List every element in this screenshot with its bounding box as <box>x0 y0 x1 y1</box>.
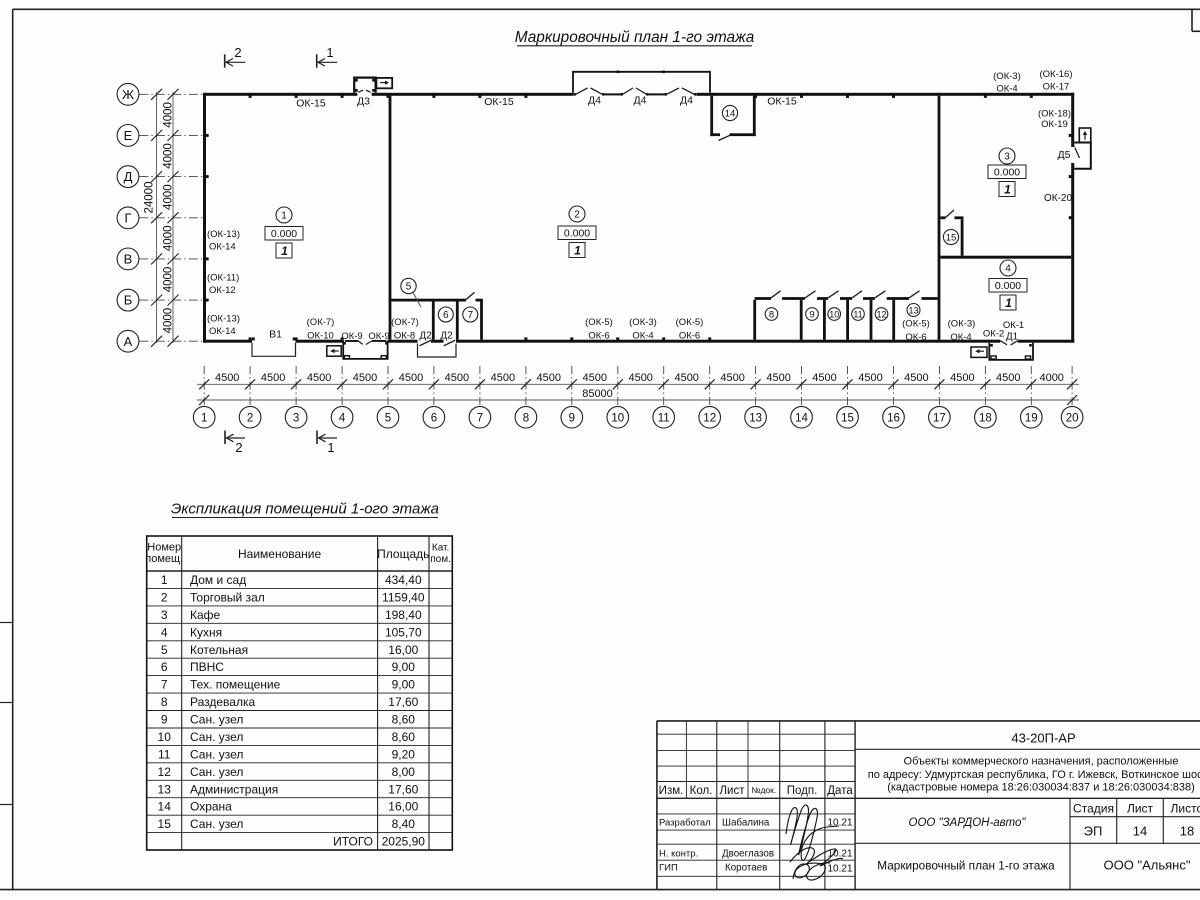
svg-text:14: 14 <box>1133 824 1147 839</box>
svg-text:13: 13 <box>749 412 762 424</box>
svg-text:(ОК-16): (ОК-16) <box>1040 69 1073 80</box>
svg-text:5: 5 <box>385 412 391 424</box>
svg-text:ОК-10: ОК-10 <box>307 331 334 342</box>
svg-text:7: 7 <box>477 412 483 424</box>
svg-text:Охрана: Охрана <box>190 800 232 814</box>
svg-text:4000: 4000 <box>163 267 175 293</box>
svg-text:9,00: 9,00 <box>392 678 416 692</box>
svg-text:Сан. узел: Сан. узел <box>190 747 243 761</box>
svg-text:Сан. узел: Сан. узел <box>190 730 243 744</box>
svg-text:4500: 4500 <box>720 372 744 384</box>
svg-text:4: 4 <box>1005 264 1011 275</box>
svg-text:Лист: Лист <box>1127 802 1154 816</box>
svg-text:Раздевалка: Раздевалка <box>190 695 255 709</box>
svg-text:Котельная: Котельная <box>190 643 248 657</box>
svg-text:17,60: 17,60 <box>388 695 418 709</box>
svg-text:1: 1 <box>1005 296 1012 310</box>
svg-text:Б: Б <box>124 293 133 308</box>
svg-text:1: 1 <box>1004 183 1011 197</box>
svg-text:2: 2 <box>247 412 253 424</box>
svg-text:24000: 24000 <box>144 182 156 214</box>
svg-text:2: 2 <box>161 590 168 604</box>
svg-text:Сан. узел: Сан. узел <box>190 713 243 727</box>
svg-text:Наименование: Наименование <box>238 547 322 561</box>
svg-text:Номер: Номер <box>147 542 181 554</box>
svg-text:4000: 4000 <box>163 184 175 210</box>
svg-text:ООО "ЗАРДОН-авто": ООО "ЗАРДОН-авто" <box>909 817 1027 829</box>
svg-text:18: 18 <box>1180 824 1194 839</box>
svg-text:43-20П-АР: 43-20П-АР <box>1011 731 1075 746</box>
svg-text:ОК-4: ОК-4 <box>950 332 971 343</box>
svg-text:4000: 4000 <box>163 143 175 169</box>
svg-text:3: 3 <box>293 412 299 424</box>
svg-text:ОК-9: ОК-9 <box>368 331 389 342</box>
svg-text:Двоеглазов: Двоеглазов <box>722 849 774 860</box>
svg-text:8,40: 8,40 <box>392 817 416 831</box>
svg-text:0.000: 0.000 <box>271 228 297 240</box>
svg-text:15: 15 <box>841 412 854 424</box>
svg-text:6: 6 <box>161 660 168 674</box>
svg-text:3: 3 <box>1004 152 1010 163</box>
svg-text:15: 15 <box>946 233 957 244</box>
svg-text:(ОК-5): (ОК-5) <box>902 319 930 330</box>
svg-text:4500: 4500 <box>261 372 285 384</box>
svg-text:17: 17 <box>933 412 946 424</box>
svg-text:4500: 4500 <box>628 372 652 384</box>
svg-text:В1: В1 <box>269 329 282 341</box>
svg-text:7: 7 <box>161 678 168 692</box>
svg-text:ОК-4: ОК-4 <box>632 331 653 342</box>
svg-text:4500: 4500 <box>950 372 974 384</box>
svg-text:14: 14 <box>158 800 172 814</box>
svg-text:4500: 4500 <box>812 372 836 384</box>
svg-text:Лист: Лист <box>720 785 746 797</box>
svg-text:11: 11 <box>158 747 171 761</box>
svg-text:Объекты коммерческого назначен: Объекты коммерческого назначения, распол… <box>904 756 1179 768</box>
svg-text:4000: 4000 <box>163 226 175 252</box>
svg-text:ОК-6: ОК-6 <box>588 331 609 342</box>
svg-text:ОК-2: ОК-2 <box>983 328 1004 339</box>
svg-text:Д2: Д2 <box>419 331 432 342</box>
svg-text:ПВНС: ПВНС <box>190 660 224 674</box>
svg-text:ЭП: ЭП <box>1084 824 1103 839</box>
svg-text:9,20: 9,20 <box>392 747 416 761</box>
svg-text:3: 3 <box>161 608 168 622</box>
svg-text:14: 14 <box>795 412 808 424</box>
svg-text:Площадь: Площадь <box>377 547 429 561</box>
svg-text:(ОК-5): (ОК-5) <box>585 317 613 328</box>
svg-text:(ОК-3): (ОК-3) <box>948 319 976 330</box>
svg-text:1: 1 <box>161 573 168 587</box>
svg-text:6: 6 <box>431 412 437 424</box>
svg-text:4500: 4500 <box>996 372 1020 384</box>
svg-text:13: 13 <box>908 305 918 315</box>
svg-text:Торговый зал: Торговый зал <box>190 590 265 604</box>
svg-text:(ОК-11): (ОК-11) <box>207 273 239 284</box>
svg-text:9: 9 <box>809 309 814 320</box>
svg-text:(ОК-3): (ОК-3) <box>993 71 1021 82</box>
svg-text:1: 1 <box>326 45 333 60</box>
svg-text:4500: 4500 <box>445 372 469 384</box>
svg-text:ОК-6: ОК-6 <box>905 332 926 343</box>
svg-text:16: 16 <box>887 412 900 424</box>
svg-text:Листов: Листов <box>1171 802 1200 816</box>
svg-text:ОК-9: ОК-9 <box>341 331 362 342</box>
svg-text:Д3: Д3 <box>357 96 370 108</box>
svg-text:ИТОГО: ИТОГО <box>333 835 373 849</box>
svg-text:4500: 4500 <box>766 372 790 384</box>
svg-text:ОК-12: ОК-12 <box>209 285 236 296</box>
svg-text:Экспликация помещений 1-ого эт: Экспликация помещений 1-ого этажа <box>171 501 439 518</box>
svg-text:Д5: Д5 <box>1058 149 1071 161</box>
svg-text:9: 9 <box>161 713 168 727</box>
svg-text:2025,90: 2025,90 <box>382 835 426 849</box>
svg-text:(ОК-5): (ОК-5) <box>676 317 704 328</box>
svg-text:18: 18 <box>979 412 992 424</box>
svg-text:6: 6 <box>443 310 449 321</box>
svg-text:Кафе: Кафе <box>190 608 221 622</box>
svg-text:(ОК-18): (ОК-18) <box>1038 109 1071 120</box>
svg-text:2: 2 <box>235 440 242 455</box>
svg-text:Сан. узел: Сан. узел <box>190 817 243 831</box>
svg-text:Д4: Д4 <box>680 95 693 107</box>
svg-text:ОК-1: ОК-1 <box>1003 320 1024 331</box>
svg-text:Администрация: Администрация <box>190 782 278 796</box>
svg-text:Дом и сад: Дом и сад <box>190 573 246 587</box>
svg-text:Стадия: Стадия <box>1073 802 1114 816</box>
svg-text:ОК-14: ОК-14 <box>209 242 236 253</box>
svg-text:№док.: №док. <box>751 785 776 795</box>
svg-text:1: 1 <box>201 412 207 424</box>
svg-text:1: 1 <box>327 440 334 455</box>
svg-text:16,00: 16,00 <box>388 643 418 657</box>
svg-text:4500: 4500 <box>674 372 698 384</box>
svg-text:11: 11 <box>853 309 862 319</box>
svg-text:4500: 4500 <box>353 372 377 384</box>
svg-text:198,40: 198,40 <box>385 608 422 622</box>
svg-text:(ОК-13): (ОК-13) <box>207 314 240 325</box>
svg-text:12: 12 <box>876 309 886 319</box>
svg-text:2: 2 <box>574 210 580 221</box>
svg-text:4500: 4500 <box>399 372 423 384</box>
svg-text:8: 8 <box>769 309 774 320</box>
svg-text:Г: Г <box>124 210 131 225</box>
svg-text:ГИП: ГИП <box>659 863 678 874</box>
svg-text:1: 1 <box>574 244 581 258</box>
svg-text:Маркировочный план 1-го этажа: Маркировочный план 1-го этажа <box>877 859 1055 873</box>
svg-text:4500: 4500 <box>491 372 515 384</box>
svg-text:4500: 4500 <box>858 372 882 384</box>
svg-text:Кухня: Кухня <box>190 625 222 639</box>
svg-text:105,70: 105,70 <box>385 625 422 639</box>
svg-text:Кат.: Кат. <box>432 543 449 554</box>
svg-text:(ОК-3): (ОК-3) <box>629 317 657 328</box>
svg-text:10: 10 <box>829 309 839 319</box>
svg-text:Д1: Д1 <box>1006 331 1019 342</box>
svg-text:0.000: 0.000 <box>994 167 1020 179</box>
svg-text:Д2: Д2 <box>440 331 453 342</box>
svg-text:Е: Е <box>124 128 133 143</box>
svg-text:1: 1 <box>281 211 287 222</box>
svg-text:ОК-6: ОК-6 <box>679 331 700 342</box>
svg-text:434,40: 434,40 <box>385 573 422 587</box>
svg-text:пом.: пом. <box>430 554 451 565</box>
svg-text:(ОК-13): (ОК-13) <box>207 229 240 240</box>
svg-text:15: 15 <box>158 817 172 831</box>
svg-text:ОК-4: ОК-4 <box>996 84 1017 95</box>
svg-text:16,00: 16,00 <box>388 800 418 814</box>
svg-text:10.21: 10.21 <box>827 864 852 875</box>
svg-text:0.000: 0.000 <box>564 228 590 240</box>
svg-text:13: 13 <box>158 782 172 796</box>
svg-text:В: В <box>124 252 133 267</box>
svg-text:4500: 4500 <box>583 372 607 384</box>
svg-text:14: 14 <box>725 109 736 120</box>
svg-text:(ОК-7): (ОК-7) <box>307 317 335 328</box>
svg-text:ОК-20: ОК-20 <box>1044 193 1072 204</box>
svg-text:17,60: 17,60 <box>388 782 418 796</box>
svg-text:(кадастровые номера 18:26:0300: (кадастровые номера 18:26:030034:837 и 1… <box>887 782 1195 794</box>
svg-text:8: 8 <box>161 695 168 709</box>
svg-text:5: 5 <box>161 643 168 657</box>
svg-text:4500: 4500 <box>215 372 239 384</box>
svg-text:ОК-15: ОК-15 <box>767 96 797 108</box>
svg-text:ООО "Альянс": ООО "Альянс" <box>1104 858 1191 873</box>
svg-text:85000: 85000 <box>582 388 613 400</box>
svg-text:9,00: 9,00 <box>392 660 416 674</box>
svg-text:Шабалина: Шабалина <box>722 818 770 829</box>
svg-text:10: 10 <box>158 730 172 744</box>
svg-text:Коротаев: Коротаев <box>725 863 767 874</box>
svg-text:(ОК-7): (ОК-7) <box>391 317 419 328</box>
svg-text:4000: 4000 <box>163 308 175 334</box>
svg-text:Маркировочный план 1-го этажа: Маркировочный план 1-го этажа <box>515 29 755 46</box>
svg-text:ОК-8: ОК-8 <box>394 331 415 342</box>
svg-text:2: 2 <box>234 45 241 60</box>
svg-text:по адресу: Удмуртская республи: по адресу: Удмуртская республика, ГО г. … <box>868 769 1200 781</box>
svg-text:помещ.: помещ. <box>145 553 183 565</box>
svg-text:ОК-17: ОК-17 <box>1043 82 1070 93</box>
svg-text:8: 8 <box>523 412 529 424</box>
svg-text:Н. контр.: Н. контр. <box>659 849 698 860</box>
svg-text:Изм.: Изм. <box>659 785 684 797</box>
svg-text:7: 7 <box>468 310 474 321</box>
svg-text:Тех. помещение: Тех. помещение <box>190 678 281 692</box>
svg-text:4500: 4500 <box>904 372 928 384</box>
svg-text:Д4: Д4 <box>588 95 601 107</box>
svg-text:19: 19 <box>1025 412 1038 424</box>
svg-text:Ж: Ж <box>122 87 134 102</box>
svg-text:1159,40: 1159,40 <box>382 590 425 604</box>
svg-text:20: 20 <box>1066 412 1079 424</box>
svg-text:12: 12 <box>158 765 172 779</box>
svg-text:0.000: 0.000 <box>995 280 1021 292</box>
svg-text:4000: 4000 <box>163 102 175 128</box>
svg-text:Д: Д <box>124 169 133 184</box>
svg-text:Д4: Д4 <box>634 95 647 107</box>
svg-text:Кол.: Кол. <box>690 785 713 797</box>
svg-text:Дата: Дата <box>827 785 853 797</box>
svg-text:9: 9 <box>569 412 575 424</box>
svg-text:1: 1 <box>281 244 288 258</box>
svg-text:4: 4 <box>339 412 346 424</box>
svg-text:12: 12 <box>703 412 716 424</box>
svg-text:ОК-15: ОК-15 <box>484 96 514 108</box>
svg-text:4500: 4500 <box>537 372 561 384</box>
svg-text:ОК-14: ОК-14 <box>209 326 236 337</box>
svg-text:4500: 4500 <box>307 372 331 384</box>
svg-text:8,00: 8,00 <box>392 765 416 779</box>
svg-text:8,60: 8,60 <box>392 730 416 744</box>
svg-text:4: 4 <box>161 625 168 639</box>
svg-text:Сан. узел: Сан. узел <box>190 765 243 779</box>
svg-text:Подп.: Подп. <box>787 785 818 797</box>
svg-text:4000: 4000 <box>1039 372 1063 384</box>
svg-text:Разработал: Разработал <box>659 818 711 829</box>
svg-text:ОК-19: ОК-19 <box>1041 119 1068 130</box>
svg-text:11: 11 <box>658 412 670 424</box>
svg-text:8,60: 8,60 <box>392 713 416 727</box>
svg-text:5: 5 <box>406 282 412 293</box>
svg-text:ОК-15: ОК-15 <box>296 98 326 110</box>
svg-text:А: А <box>124 334 133 349</box>
svg-text:10: 10 <box>611 412 624 424</box>
